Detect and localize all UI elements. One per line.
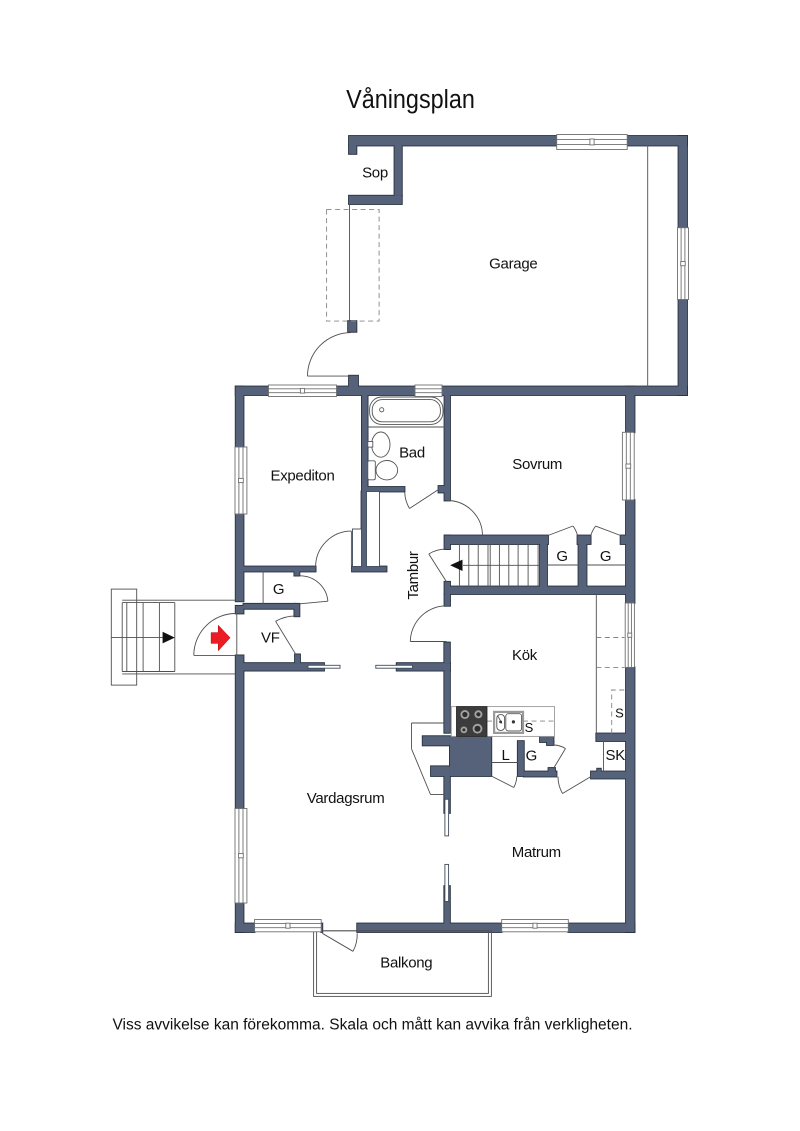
svg-text:Våningsplan: Våningsplan	[346, 86, 475, 114]
svg-text:G: G	[526, 748, 537, 765]
svg-text:G: G	[556, 548, 567, 565]
svg-text:Tambur: Tambur	[405, 551, 422, 600]
svg-text:Vardagsrum: Vardagsrum	[307, 790, 385, 807]
svg-text:Expediton: Expediton	[270, 468, 334, 485]
svg-text:S: S	[525, 720, 534, 735]
svg-text:G: G	[600, 548, 611, 565]
svg-text:Kök: Kök	[512, 647, 538, 664]
svg-text:Balkong: Balkong	[380, 955, 432, 972]
svg-text:Sop: Sop	[362, 165, 388, 182]
svg-text:Garage: Garage	[489, 256, 537, 273]
svg-text:L: L	[501, 747, 509, 764]
svg-text:G: G	[273, 581, 284, 598]
svg-text:S: S	[615, 706, 624, 721]
svg-text:Bad: Bad	[399, 445, 425, 462]
svg-text:Viss avvikelse kan förekomma.: Viss avvikelse kan förekomma. Skala och …	[112, 1017, 632, 1034]
svg-text:Sovrum: Sovrum	[512, 456, 562, 473]
svg-text:SK: SK	[605, 747, 625, 764]
svg-text:Matrum: Matrum	[512, 844, 561, 861]
svg-text:VF: VF	[261, 630, 280, 647]
